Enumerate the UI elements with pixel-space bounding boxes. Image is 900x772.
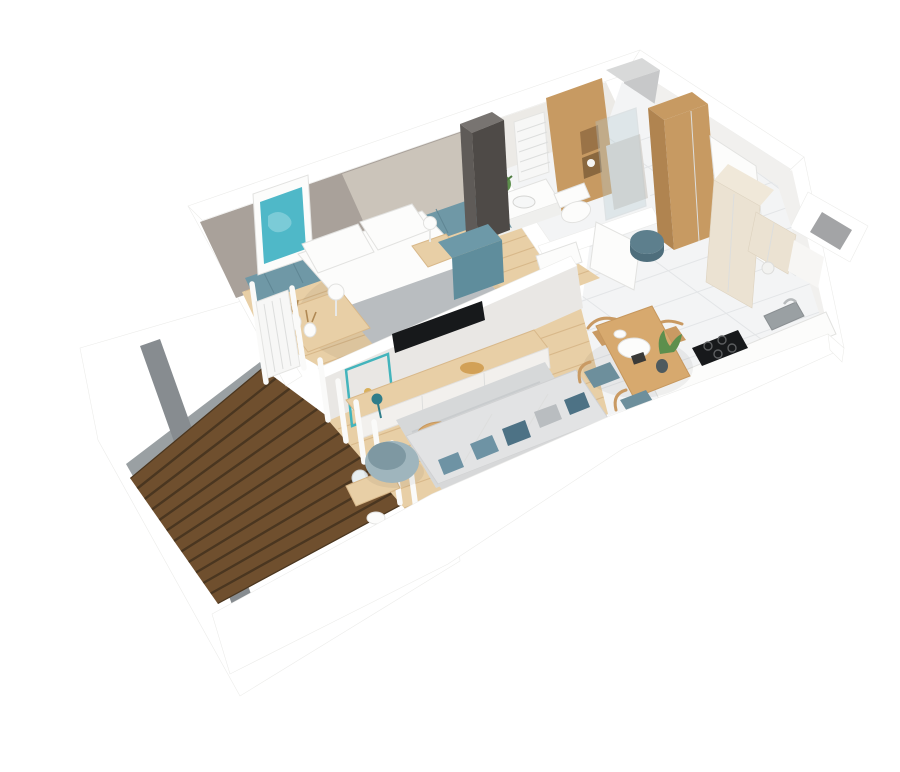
dark-wardrobe xyxy=(460,112,510,242)
apartment-3d-floorplan: 3D cutaway floor plan render of a one-be… xyxy=(40,16,900,756)
plate-small xyxy=(614,330,626,338)
wood-bowl-decor xyxy=(460,362,484,374)
armchair-seat xyxy=(368,442,406,470)
towel-roll xyxy=(587,159,595,167)
kitchen-bin xyxy=(762,262,774,274)
serving-platter xyxy=(618,338,650,358)
floorplan-render xyxy=(40,16,900,756)
washbasin xyxy=(513,196,535,208)
teal-pouf xyxy=(630,230,664,254)
